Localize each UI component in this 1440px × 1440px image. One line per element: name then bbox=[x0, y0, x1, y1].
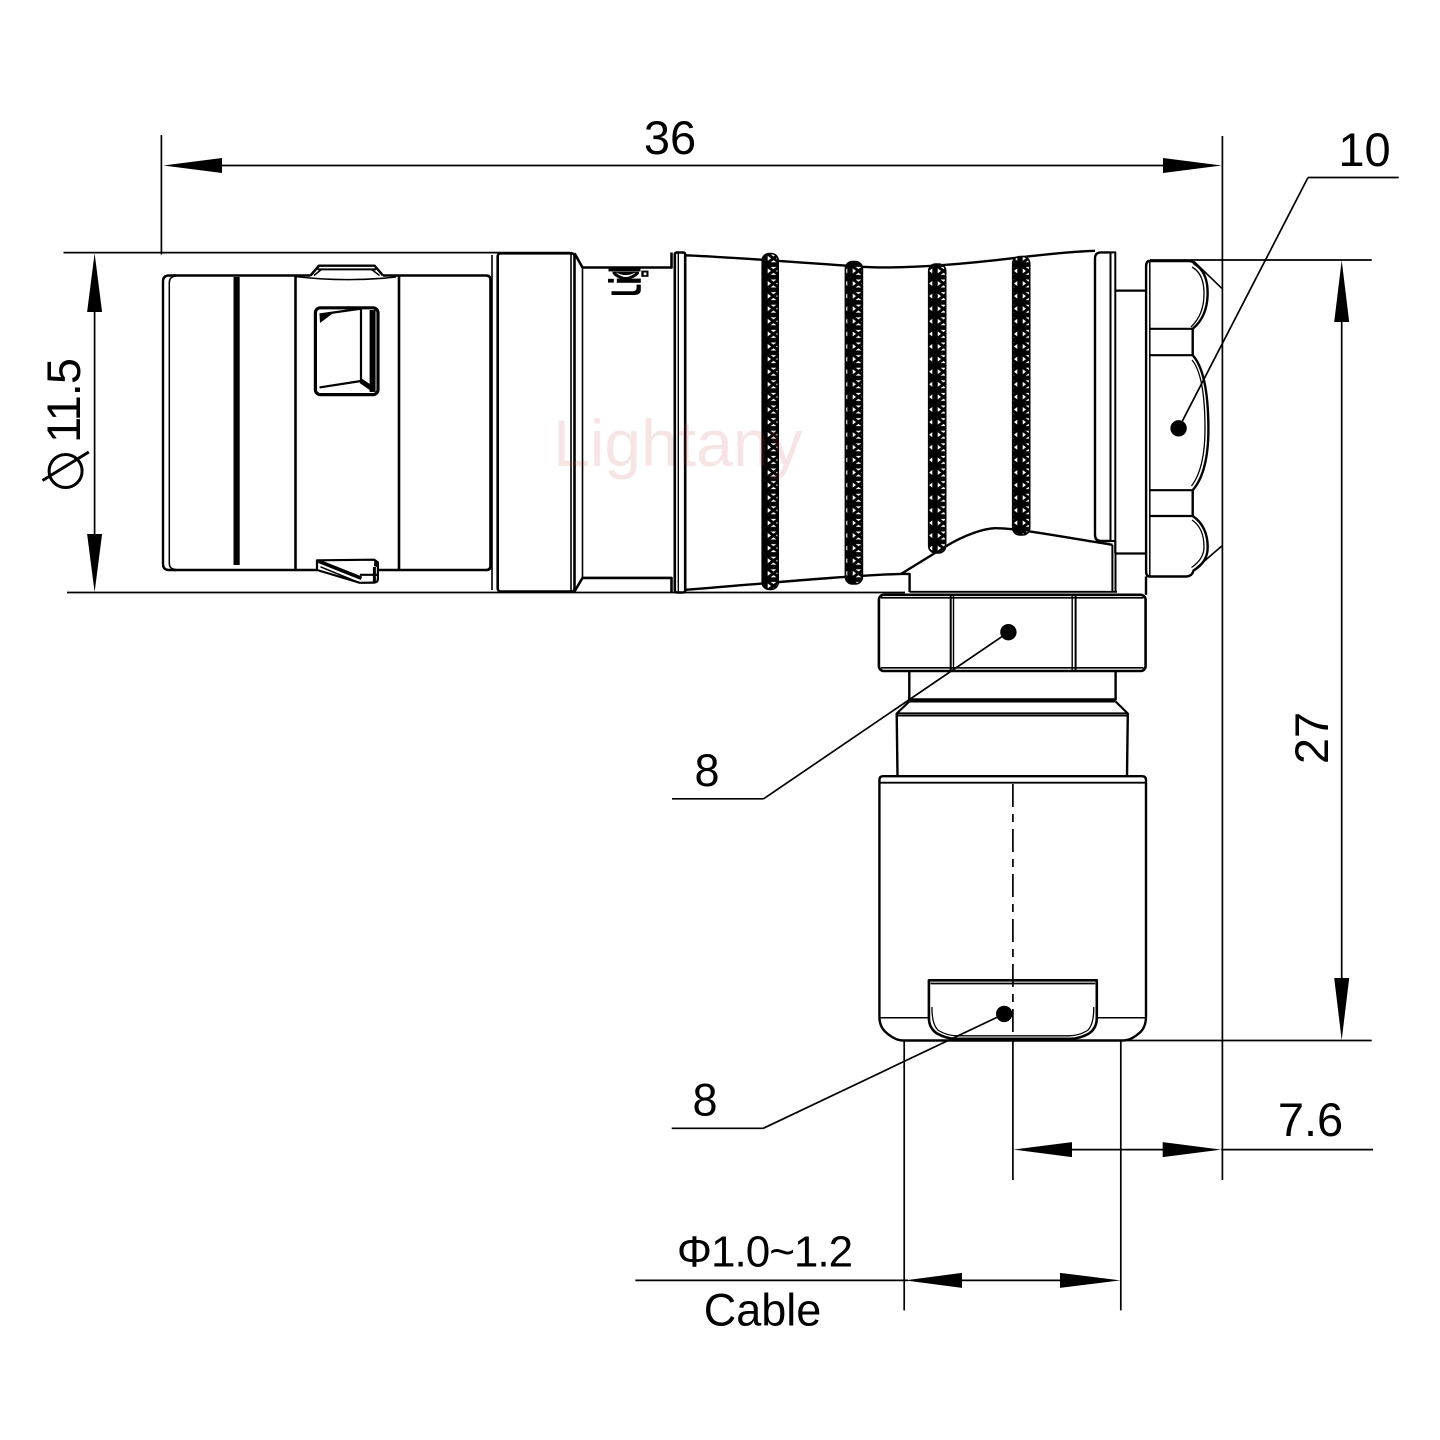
svg-text:Lightany: Lightany bbox=[553, 406, 803, 480]
svg-text:7.6: 7.6 bbox=[1278, 1093, 1343, 1146]
svg-text:Cable: Cable bbox=[704, 1285, 822, 1336]
svg-text:11.5: 11.5 bbox=[37, 359, 90, 443]
svg-text:36: 36 bbox=[644, 111, 696, 164]
svg-text:8: 8 bbox=[692, 1075, 717, 1126]
svg-text:10: 10 bbox=[1338, 123, 1390, 176]
svg-text:Φ1.0~1.2: Φ1.0~1.2 bbox=[677, 1228, 852, 1277]
svg-text:27: 27 bbox=[1285, 712, 1338, 764]
svg-text:8: 8 bbox=[694, 745, 719, 796]
